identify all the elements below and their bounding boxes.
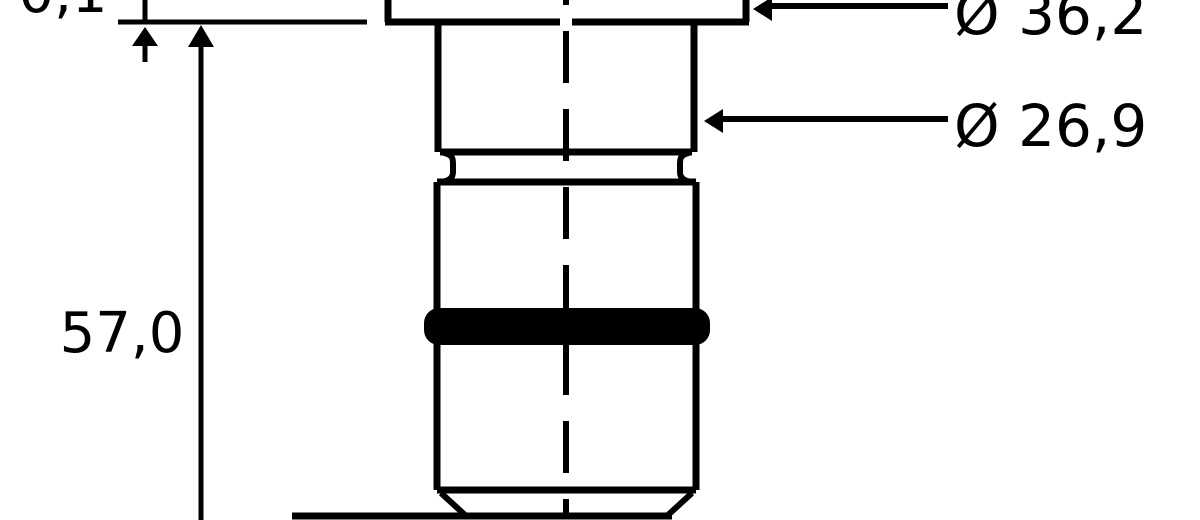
dimension-label-flange-thickness: 0,1	[18, 0, 107, 26]
arrow-up-icon	[188, 25, 214, 47]
technical-drawing-canvas: 0,1 57,0 Ø 36,2 Ø 26,9	[0, 0, 1200, 520]
leader-body-diameter: Ø 26,9	[704, 92, 1147, 160]
arrow-up-icon	[132, 27, 158, 46]
dimension-overall-length: 57,0	[60, 25, 214, 520]
part-outline	[292, 0, 749, 516]
dimension-label-overall-length: 57,0	[60, 301, 185, 366]
drawing-viewport: 0,1 57,0 Ø 36,2 Ø 26,9	[0, 0, 1200, 520]
dimension-label-body-diameter: Ø 26,9	[954, 92, 1147, 160]
dimension-flange-thickness: 0,1	[18, 0, 367, 62]
dimension-label-flange-diameter: Ø 36,2	[954, 0, 1147, 48]
leader-flange-diameter: Ø 36,2	[753, 0, 1147, 48]
